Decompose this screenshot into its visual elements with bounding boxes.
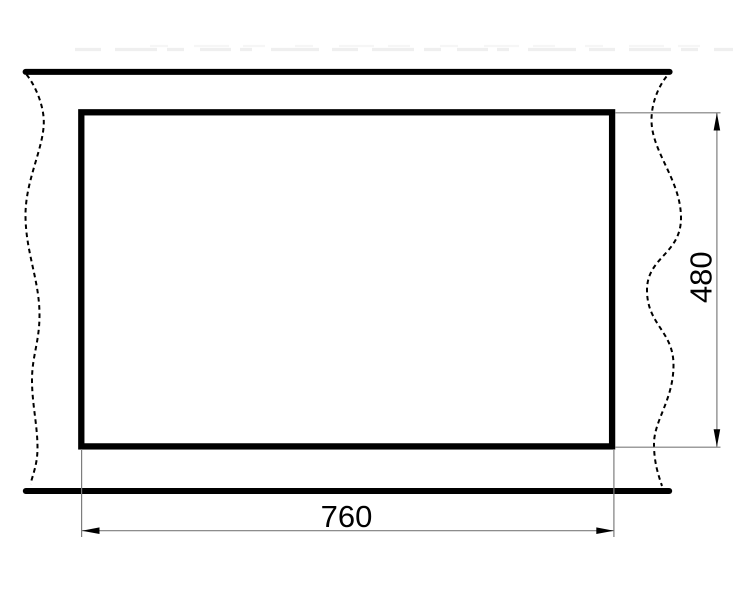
svg-text:480: 480	[684, 251, 719, 303]
svg-text:760: 760	[321, 499, 373, 534]
